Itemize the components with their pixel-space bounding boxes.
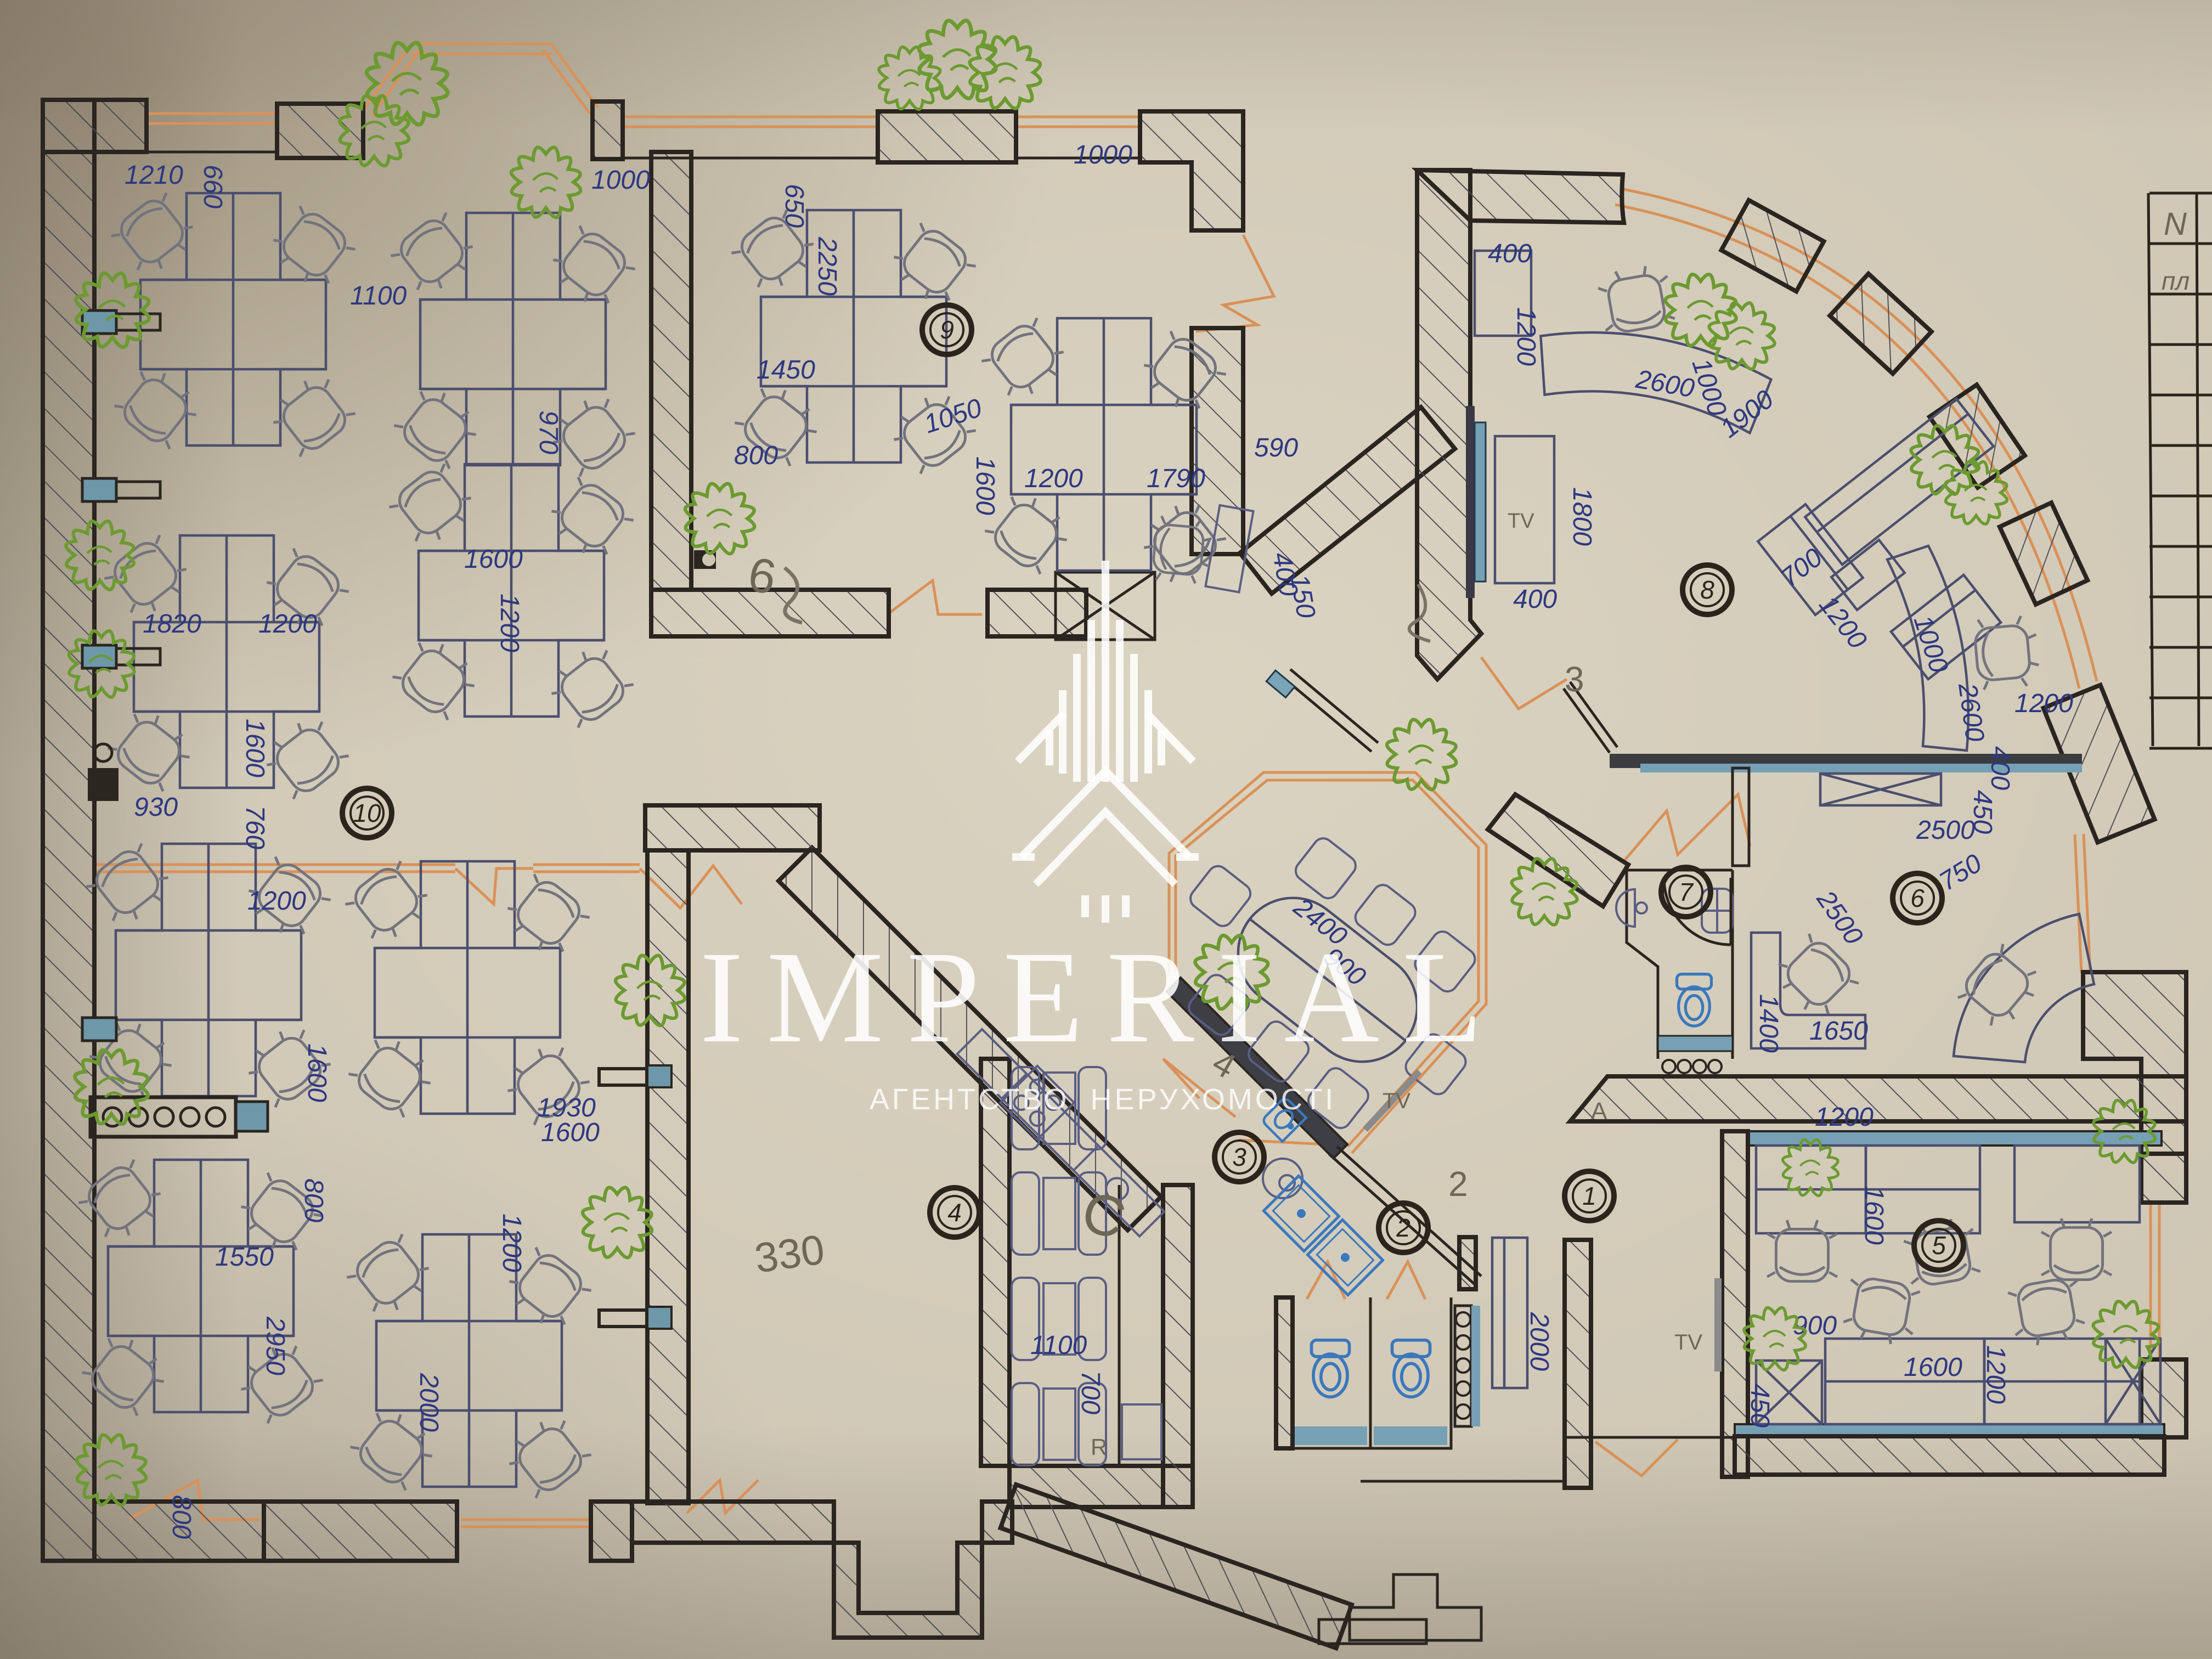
svg-text:7: 7 [1679, 878, 1694, 906]
svg-text:660: 660 [198, 165, 227, 208]
svg-text:1200: 1200 [2015, 689, 2073, 718]
svg-text:1200: 1200 [247, 887, 306, 916]
svg-text:1600: 1600 [541, 1118, 600, 1147]
svg-text:4: 4 [947, 1198, 962, 1227]
svg-text:400: 400 [1488, 239, 1532, 268]
svg-text:АГЕНТСТВО НЕРУХОМОСТІ: АГЕНТСТВО НЕРУХОМОСТІ [870, 1083, 1336, 1116]
svg-text:TV: TV [1383, 1089, 1410, 1113]
svg-text:1200: 1200 [497, 1214, 526, 1272]
svg-text:1000: 1000 [591, 166, 650, 195]
svg-text:N: N [2164, 206, 2187, 242]
svg-text:1450: 1450 [757, 356, 815, 385]
svg-text:1200: 1200 [1024, 464, 1083, 493]
svg-text:590: 590 [1254, 433, 1298, 462]
svg-text:1790: 1790 [1147, 464, 1205, 493]
svg-text:800: 800 [734, 441, 778, 470]
svg-text:800: 800 [299, 1178, 328, 1222]
svg-text:900: 900 [1793, 1311, 1837, 1340]
svg-text:R: R [1091, 1434, 1107, 1460]
svg-text:1600: 1600 [1859, 1186, 1888, 1245]
svg-text:1550: 1550 [215, 1243, 274, 1272]
svg-text:1600: 1600 [302, 1043, 331, 1102]
svg-text:800: 800 [167, 1495, 196, 1539]
svg-text:1650: 1650 [1809, 1017, 1868, 1046]
svg-text:1: 1 [1582, 1182, 1596, 1210]
svg-text:1200: 1200 [495, 594, 524, 652]
svg-text:3: 3 [1565, 659, 1584, 699]
svg-text:1600: 1600 [1904, 1353, 1962, 1382]
svg-text:1200: 1200 [1815, 1103, 1874, 1132]
svg-text:450: 450 [1745, 1384, 1774, 1427]
svg-text:330: 330 [752, 1226, 827, 1282]
svg-text:760: 760 [240, 805, 269, 849]
svg-text:1820: 1820 [143, 610, 201, 639]
svg-text:1600: 1600 [464, 545, 523, 574]
svg-text:1210: 1210 [125, 161, 183, 190]
svg-text:700: 700 [1076, 1370, 1105, 1414]
svg-text:8: 8 [1700, 575, 1714, 604]
svg-text:930: 930 [134, 793, 178, 822]
svg-text:1200: 1200 [258, 610, 317, 639]
svg-text:1400: 1400 [1754, 994, 1783, 1053]
svg-text:1100: 1100 [350, 281, 407, 311]
svg-text:2500: 2500 [1916, 816, 1975, 845]
svg-text:650: 650 [780, 184, 809, 228]
svg-text:10: 10 [353, 799, 381, 827]
svg-text:IMPERIAL: IMPERIAL [699, 924, 1505, 1070]
svg-text:1000: 1000 [1074, 140, 1132, 170]
svg-text:1800: 1800 [1567, 487, 1596, 546]
svg-text:TV: TV [1674, 1330, 1702, 1355]
svg-text:2000: 2000 [414, 1373, 443, 1432]
svg-text:400: 400 [1985, 746, 2015, 790]
svg-text:2: 2 [1396, 1214, 1410, 1242]
svg-text:5: 5 [1932, 1231, 1946, 1260]
svg-text:1600: 1600 [970, 456, 1000, 515]
svg-text:2: 2 [1448, 1164, 1468, 1204]
svg-text:6: 6 [1910, 884, 1925, 912]
svg-text:2950: 2950 [261, 1316, 290, 1375]
svg-text:1200: 1200 [1511, 307, 1541, 366]
svg-text:1200: 1200 [1981, 1345, 2010, 1404]
svg-text:3: 3 [1232, 1143, 1246, 1171]
svg-text:1600: 1600 [240, 719, 269, 777]
svg-text:TV: TV [1508, 510, 1534, 533]
svg-text:1100: 1100 [1030, 1331, 1087, 1360]
svg-text:A: A [1591, 1098, 1607, 1125]
svg-text:970: 970 [534, 410, 563, 454]
svg-text:пл: пл [2162, 267, 2190, 295]
svg-text:400: 400 [1513, 585, 1557, 614]
svg-text:2000: 2000 [1525, 1312, 1554, 1371]
svg-text:2250: 2250 [812, 236, 842, 296]
svg-text:9: 9 [940, 315, 954, 344]
